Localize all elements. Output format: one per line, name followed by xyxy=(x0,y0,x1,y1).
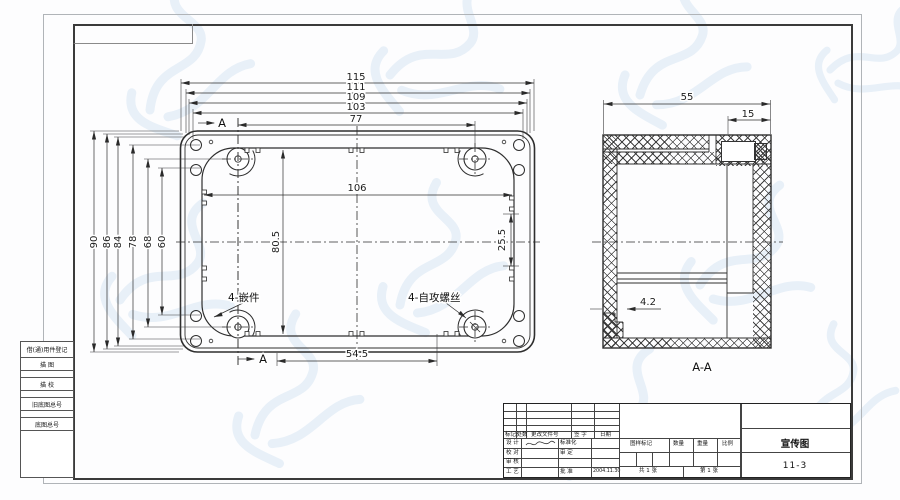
margin-block-trace: 描 图 xyxy=(21,358,73,371)
margin-block-spacer xyxy=(21,391,73,398)
margin-block-label: 借(通)用件登记 xyxy=(27,345,68,354)
dim-arrowhead xyxy=(131,145,135,154)
dim-arrowhead xyxy=(131,331,135,340)
dim-77: 77 xyxy=(350,114,363,125)
dim-arrowhead xyxy=(92,344,96,353)
section-marker-bottom: A xyxy=(259,352,267,366)
section-view-outline xyxy=(603,135,771,348)
section-view-inner-lines xyxy=(603,135,771,338)
section-view-label: A-A xyxy=(692,360,712,374)
dim-78: 78 xyxy=(128,236,139,249)
dim-55: 55 xyxy=(681,92,694,103)
dim-arrowhead xyxy=(604,102,613,106)
role-approve: 批 准 xyxy=(560,470,573,476)
rev-header-docno: 更改文件号 xyxy=(531,433,559,439)
dim-68: 68 xyxy=(143,236,154,249)
dim-arrowhead xyxy=(526,81,535,85)
dim-arrowhead xyxy=(762,102,771,106)
info-header-scale: 比例 xyxy=(722,442,733,448)
label-insert: 4-嵌件 xyxy=(228,292,259,304)
dim-arrowhead xyxy=(189,101,198,105)
dim-arrowhead xyxy=(467,123,476,127)
margin-block-borrow: 借(通)用件登记 xyxy=(21,342,73,358)
margin-block-label: 底图总号 xyxy=(35,420,59,429)
title-block: 标记 处数 更改文件号 签 字 日期 设 计 标准化 校 对 审 定 审 核 工… xyxy=(503,403,851,478)
drawing-number: 11-3 xyxy=(741,461,849,471)
margin-block-trace-check: 描 校 xyxy=(21,378,73,391)
margin-block-old-master-no: 旧底图总号 xyxy=(21,398,73,411)
dim-arrowhead xyxy=(509,258,513,267)
drawing-sheet: 115 111 109 103 77 90 86 84 78 68 60 106… xyxy=(0,0,900,500)
dim-54-5: 54.5 xyxy=(346,349,368,360)
info-header-stage-mark: 图样标记 xyxy=(630,442,652,448)
extension-lines xyxy=(90,79,771,366)
dim-arrowhead xyxy=(105,341,109,350)
role-design: 设 计 xyxy=(506,441,519,447)
drawing-title: 宣传图 xyxy=(741,436,849,450)
dim-arrowhead xyxy=(160,168,164,177)
dim-arrowhead xyxy=(160,307,164,316)
main-view-bosses xyxy=(227,148,486,338)
label-self-tapping-screw: 4-自攻螺丝 xyxy=(408,291,460,304)
dim-arrowhead xyxy=(238,123,247,127)
sheet-total: 共 1 张 xyxy=(639,469,657,475)
dim-arrowhead xyxy=(509,214,513,223)
dim-86: 86 xyxy=(102,236,113,249)
info-header-weight: 重量 xyxy=(697,442,708,448)
rev-header-count: 处数 xyxy=(517,433,528,439)
margin-blocks-strip: 借(通)用件登记 描 图 描 校 旧底图总号 底图总号 xyxy=(20,341,74,478)
margin-block-master-no: 底图总号 xyxy=(21,418,73,431)
dim-arrowhead xyxy=(281,150,285,159)
dim-arrowhead xyxy=(116,338,120,347)
dim-4-2: 4.2 xyxy=(640,297,656,308)
rev-header-sign: 签 字 xyxy=(574,433,587,439)
dim-arrowhead xyxy=(146,319,150,328)
dim-arrowhead xyxy=(92,131,96,140)
dim-arrowhead xyxy=(193,111,202,115)
margin-block-label: 描 图 xyxy=(40,360,54,369)
main-view-flange-holes xyxy=(191,140,525,347)
dim-arrowhead xyxy=(728,118,737,122)
dim-arrowhead xyxy=(522,91,531,95)
margin-block-spacer xyxy=(21,371,73,378)
dim-15: 15 xyxy=(742,109,755,120)
dimension-lines xyxy=(94,83,771,361)
margin-block-label: 旧底图总号 xyxy=(32,400,62,409)
dim-arrowhead xyxy=(429,359,438,363)
approve-date: 2004.11.30 xyxy=(593,470,620,475)
rev-header-date: 日期 xyxy=(600,433,611,439)
dim-arrowhead xyxy=(515,111,524,115)
dim-25-5: 25.5 xyxy=(497,229,508,251)
dim-arrowhead xyxy=(116,137,120,146)
dim-arrowhead xyxy=(281,326,285,335)
dim-90: 90 xyxy=(89,236,100,249)
dim-arrowhead xyxy=(105,134,109,143)
dim-arrowhead xyxy=(458,311,466,318)
sheet-number: 第 1 张 xyxy=(700,469,718,475)
dim-103: 103 xyxy=(346,102,365,113)
role-check: 校 对 xyxy=(506,451,519,457)
dim-84: 84 xyxy=(113,236,124,249)
dim-arrowhead xyxy=(186,91,195,95)
dim-arrowhead xyxy=(146,159,150,168)
dim-80-5: 80.5 xyxy=(271,231,282,253)
role-audit: 审 核 xyxy=(506,460,519,466)
role-standardization: 标准化 xyxy=(560,441,577,447)
section-marker-top: A xyxy=(218,116,226,130)
margin-block-label: 描 校 xyxy=(40,380,54,389)
dim-106: 106 xyxy=(347,183,366,194)
dim-arrowhead xyxy=(214,312,223,317)
signature-scribble xyxy=(524,440,556,448)
dim-arrowhead xyxy=(207,121,216,125)
dim-arrowhead xyxy=(519,101,528,105)
role-process: 工 艺 xyxy=(506,470,519,476)
dim-arrowhead xyxy=(277,359,286,363)
dim-arrowhead xyxy=(762,118,771,122)
rev-header-mark: 标记 xyxy=(505,433,516,439)
dim-arrowhead xyxy=(247,357,256,361)
dim-arrowhead xyxy=(627,307,636,311)
dim-60: 60 xyxy=(157,236,168,249)
dim-arrowhead xyxy=(181,81,190,85)
margin-block-spacer xyxy=(21,411,73,418)
info-header-qty: 数量 xyxy=(673,442,684,448)
role-examine: 审 定 xyxy=(560,451,573,457)
